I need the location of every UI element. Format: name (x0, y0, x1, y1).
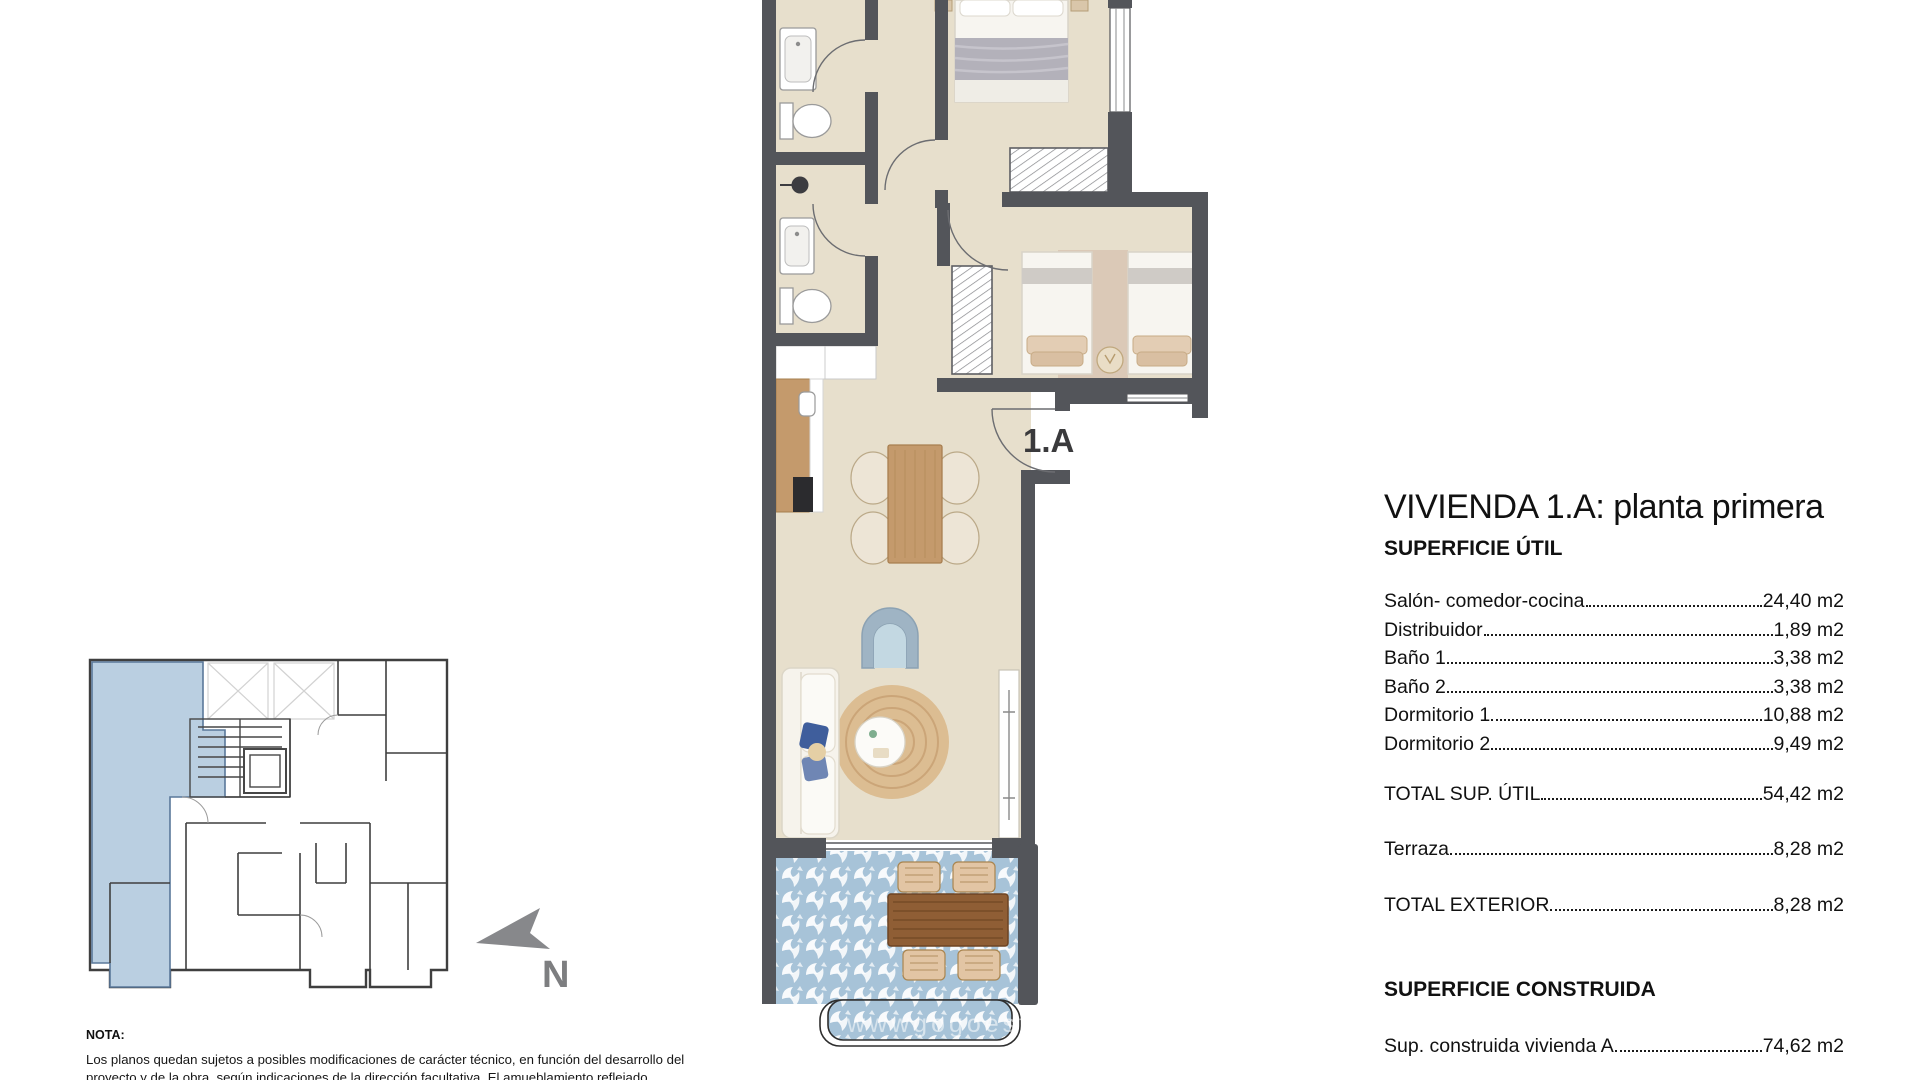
superficie-construida-heading: SUPERFICIE CONSTRUIDA (1384, 978, 1844, 1002)
coffee-table (855, 717, 905, 767)
north-arrow-icon (476, 908, 550, 949)
toilet-icon (780, 103, 831, 139)
toilet-icon (780, 288, 831, 324)
nota-block: NOTA: Los planos quedan sujetos a posibl… (86, 1028, 726, 1080)
superficie-util-rows: Salón- comedor-cocina24,40 m2 Distribuid… (1384, 587, 1844, 758)
nightstand (1071, 0, 1088, 11)
total-sup-util-row: TOTAL SUP. ÚTIL54,42 m2 (1384, 780, 1844, 809)
kitchen-sink (799, 392, 815, 416)
terraza-row: Terraza8,28 m2 (1384, 835, 1844, 864)
area-row: Baño 13,38 m2 (1384, 644, 1844, 673)
specs-block: VIVIENDA 1.A: planta primera SUPERFICIE … (1384, 488, 1844, 1060)
nota-body: Los planos quedan sujetos a posibles mod… (86, 1051, 726, 1080)
watermark: wwwgogoestu (846, 1010, 1048, 1038)
round-stool (1097, 347, 1123, 373)
window (1110, 8, 1130, 112)
sink-icon (780, 28, 816, 90)
double-bed (955, 0, 1068, 102)
area-row: Salón- comedor-cocina24,40 m2 (1384, 587, 1844, 616)
area-row: Dormitorio 110,88 m2 (1384, 701, 1844, 730)
bedroom-2 (952, 250, 1196, 378)
sofa (782, 668, 839, 838)
floor-plan-sheet: wwwgogoestu (0, 0, 1920, 1080)
sup-construida-row: Sup. construida vivienda A74,62 m2 (1384, 1032, 1844, 1061)
north-arrow: N (470, 895, 590, 1000)
terrace: wwwgogoestu (776, 849, 1048, 1046)
sideboard (999, 670, 1019, 838)
nota-heading: NOTA: (86, 1028, 726, 1042)
wardrobe (952, 266, 992, 374)
page-title: VIVIENDA 1.A: planta primera (1384, 488, 1844, 527)
superficie-util-heading: SUPERFICIE ÚTIL (1384, 537, 1844, 561)
sink-icon (780, 218, 814, 274)
single-bed (1022, 252, 1092, 374)
window (1127, 394, 1188, 402)
key-plan (86, 653, 456, 993)
main-floor-plan: wwwgogoestu (755, 0, 1215, 1050)
sliding-door (826, 840, 992, 851)
total-exterior-row: TOTAL EXTERIOR8,28 m2 (1384, 891, 1844, 920)
wardrobe (1010, 148, 1108, 192)
single-bed (1128, 252, 1196, 374)
cooktop (793, 477, 813, 512)
unit-label: 1.A (1023, 422, 1074, 459)
area-row: Distribuidor1,89 m2 (1384, 616, 1844, 645)
pillow (808, 743, 826, 761)
terrace-table (888, 894, 1008, 946)
north-label: N (542, 954, 569, 996)
armchair (862, 608, 918, 668)
area-row: Dormitorio 29,49 m2 (1384, 730, 1844, 759)
area-row: Baño 23,38 m2 (1384, 673, 1844, 702)
